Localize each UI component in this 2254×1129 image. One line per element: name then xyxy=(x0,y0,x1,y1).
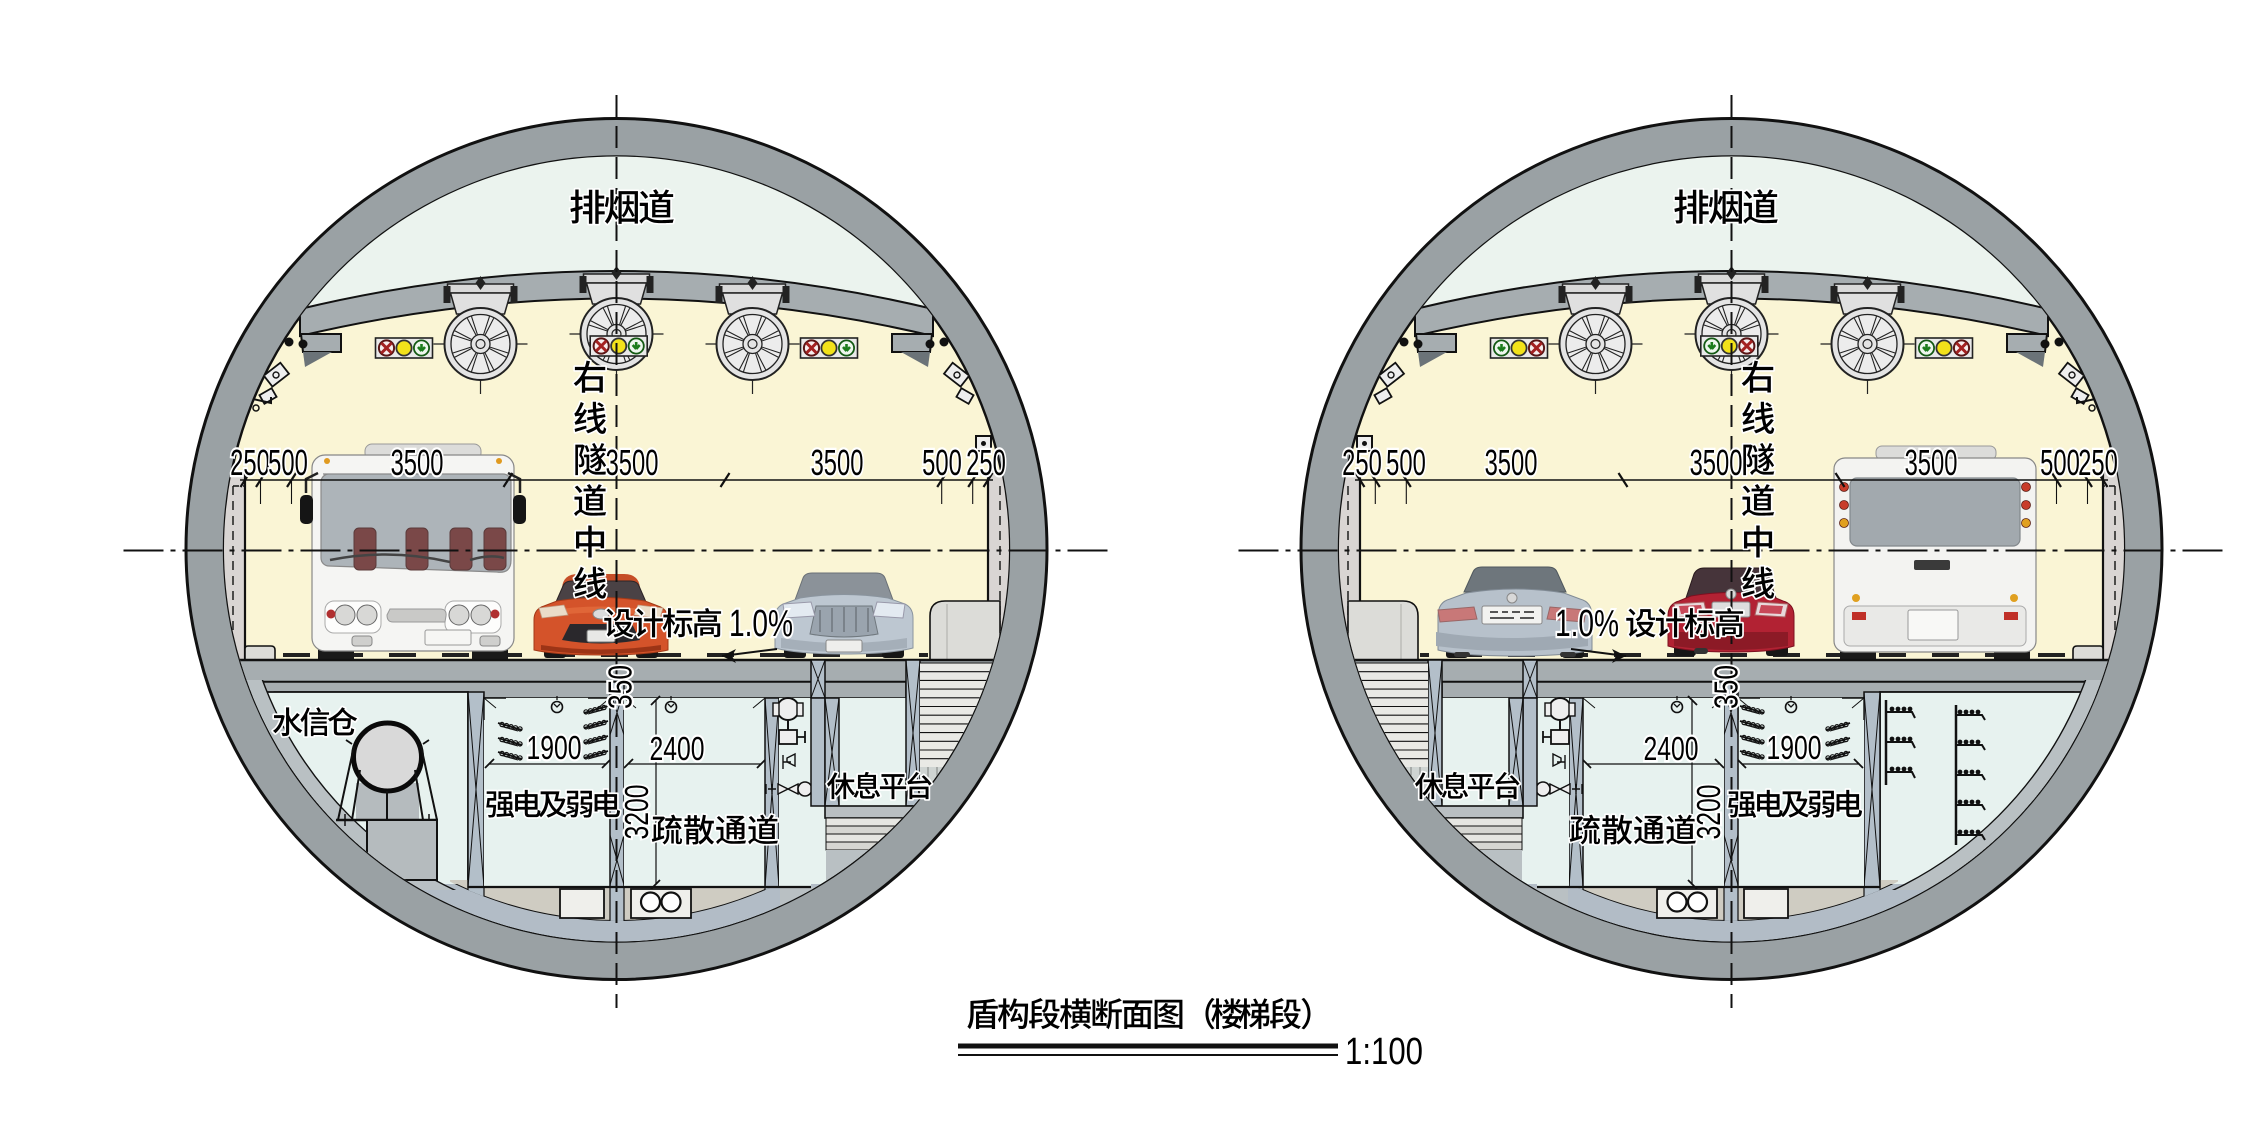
svg-text:250: 250 xyxy=(1342,443,1382,483)
svg-text:250: 250 xyxy=(966,443,1006,483)
svg-text:3500: 3500 xyxy=(811,443,864,483)
svg-text:350: 350 xyxy=(1709,665,1745,709)
svg-text:3500: 3500 xyxy=(391,443,444,483)
svg-text:3500: 3500 xyxy=(1690,443,1743,483)
svg-text:250: 250 xyxy=(2078,443,2118,483)
svg-text:3200: 3200 xyxy=(1692,784,1728,839)
svg-text:1.0%: 1.0% xyxy=(1555,603,1619,645)
svg-text:3500: 3500 xyxy=(1485,443,1538,483)
svg-text:250: 250 xyxy=(230,443,270,483)
svg-text:500: 500 xyxy=(1386,443,1426,483)
svg-text:350: 350 xyxy=(603,665,639,709)
svg-text:2400: 2400 xyxy=(649,732,704,768)
svg-text:2400: 2400 xyxy=(1643,732,1698,768)
svg-text:3200: 3200 xyxy=(620,784,656,839)
svg-text:1:100: 1:100 xyxy=(1345,1031,1423,1073)
svg-text:1900: 1900 xyxy=(1766,731,1821,767)
svg-text:3500: 3500 xyxy=(1905,443,1958,483)
svg-text:500: 500 xyxy=(2040,443,2080,483)
svg-text:1900: 1900 xyxy=(526,731,581,767)
svg-text:500: 500 xyxy=(922,443,962,483)
svg-text:500: 500 xyxy=(268,443,308,483)
svg-text:3500: 3500 xyxy=(606,443,659,483)
svg-text:1.0%: 1.0% xyxy=(729,603,793,645)
